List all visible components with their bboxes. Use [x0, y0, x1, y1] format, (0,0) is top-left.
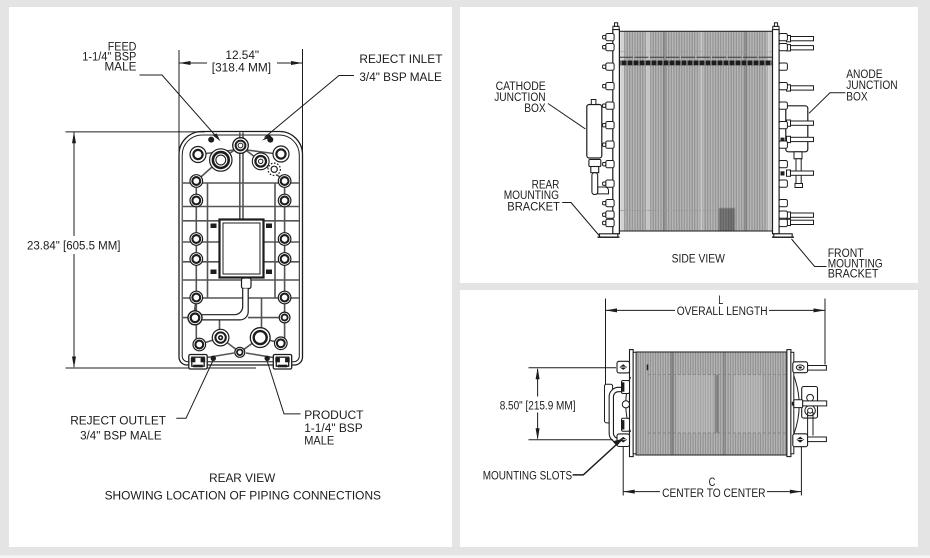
svg-text:3/4" BSP MALE: 3/4" BSP MALE — [80, 428, 162, 442]
svg-text:REAR VIEW: REAR VIEW — [209, 471, 275, 485]
svg-text:MALE: MALE — [304, 434, 334, 448]
svg-text:BOX: BOX — [846, 89, 867, 103]
svg-text:[318.4 MM]: [318.4 MM] — [212, 60, 271, 74]
svg-text:OVERALL LENGTH: OVERALL LENGTH — [677, 304, 768, 318]
svg-text:REJECT OUTLET: REJECT OUTLET — [70, 414, 166, 428]
svg-text:BOX: BOX — [524, 101, 546, 115]
svg-text:PRODUCT: PRODUCT — [304, 408, 364, 422]
svg-text:8.50" [215.9 MM]: 8.50" [215.9 MM] — [500, 398, 576, 412]
svg-text:SHOWING LOCATION OF PIPING CON: SHOWING LOCATION OF PIPING CONNECTIONS — [105, 489, 381, 503]
svg-text:REJECT INLET: REJECT INLET — [359, 52, 443, 66]
svg-text:23.84" [605.5 MM]: 23.84" [605.5 MM] — [27, 239, 121, 253]
svg-text:SIDE VIEW: SIDE VIEW — [672, 252, 726, 266]
svg-text:MOUNTING SLOTS: MOUNTING SLOTS — [483, 469, 573, 483]
svg-text:BRACKET: BRACKET — [828, 267, 879, 281]
svg-text:3/4" BSP MALE: 3/4" BSP MALE — [359, 70, 441, 84]
svg-text:CENTER TO CENTER: CENTER TO CENTER — [662, 486, 765, 500]
svg-text:MALE: MALE — [105, 60, 137, 74]
svg-text:BRACKET: BRACKET — [507, 199, 560, 213]
